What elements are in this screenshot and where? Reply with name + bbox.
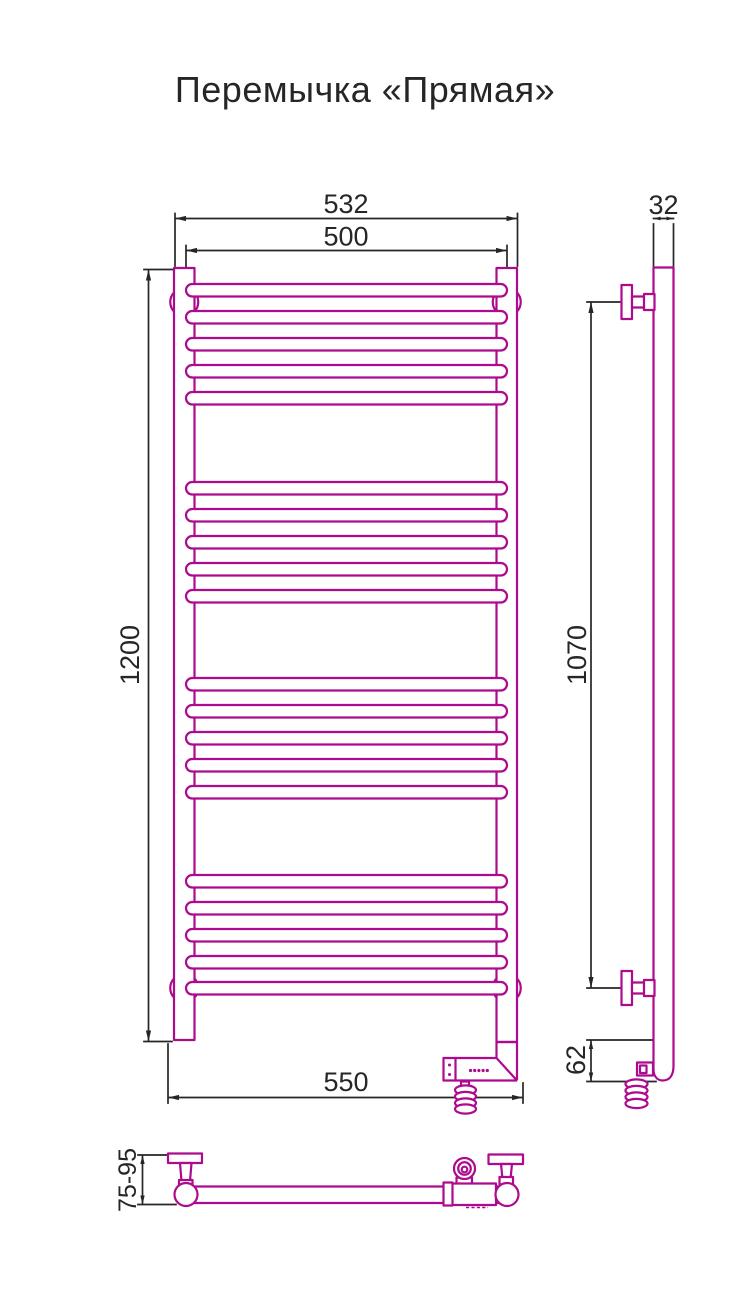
rung-bar [186, 678, 507, 691]
rung-bar [186, 732, 507, 745]
bottom-view [168, 1154, 523, 1208]
label-wall-distance: 75-95 [114, 1148, 142, 1212]
dim-height [144, 270, 173, 1042]
label-mounting-height: 1070 [562, 625, 592, 685]
tube-end-right [496, 1183, 519, 1206]
left-rail [174, 268, 195, 1040]
regulator-knob [454, 1158, 475, 1186]
label-bar-width: 500 [323, 222, 368, 252]
label-height: 1200 [115, 625, 145, 685]
label-tube-depth: 32 [648, 190, 678, 220]
rung-bar [186, 705, 507, 718]
power-cable-coil-front [455, 1082, 476, 1114]
rung-bar [186, 482, 507, 495]
rung-bar [186, 392, 507, 405]
rung-bar [186, 590, 507, 603]
rung-bar [186, 902, 507, 915]
rung-bar [186, 786, 507, 799]
cable-fitting [637, 1063, 653, 1076]
front-view [170, 268, 521, 1114]
rung-bar [186, 956, 507, 969]
technical-drawing: 532 500 1200 550 32 1070 62 75-95 [0, 0, 750, 1300]
rung-bar [186, 982, 507, 995]
wall-bracket-bottom [622, 971, 655, 1005]
rung-bar [186, 875, 507, 888]
rung-bar [186, 759, 507, 772]
heater-sleeve [452, 1184, 496, 1206]
drawing-page: 532 500 1200 550 32 1070 62 75-95 [0, 0, 750, 1300]
rung-bars [186, 284, 507, 995]
tube-end-left [175, 1183, 198, 1206]
label-overall-width: 532 [323, 189, 368, 219]
drawing-title: Перемычка «Прямая» [175, 69, 555, 110]
label-bottom-offset: 62 [561, 1045, 591, 1075]
rung-bar [186, 311, 507, 324]
dim-mounting-height [587, 302, 621, 988]
wall-bracket-right [489, 1155, 524, 1185]
rung-bar [186, 284, 507, 297]
power-cable-coil-side [626, 1079, 648, 1108]
rung-bar [186, 338, 507, 351]
heater-end-cap [444, 1183, 453, 1206]
label-bottom-width: 550 [323, 1067, 368, 1097]
rung-bar [186, 365, 507, 378]
side-view [622, 268, 674, 1109]
rung-bar [186, 563, 507, 576]
dim-tube-depth [654, 219, 674, 267]
wall-bracket-top [622, 285, 655, 319]
right-rail [497, 268, 518, 1042]
side-tube [654, 268, 674, 1081]
heating-element-box [444, 1042, 518, 1081]
rung-bar [186, 509, 507, 522]
rung-bar [186, 929, 507, 942]
rung-bar [186, 536, 507, 549]
